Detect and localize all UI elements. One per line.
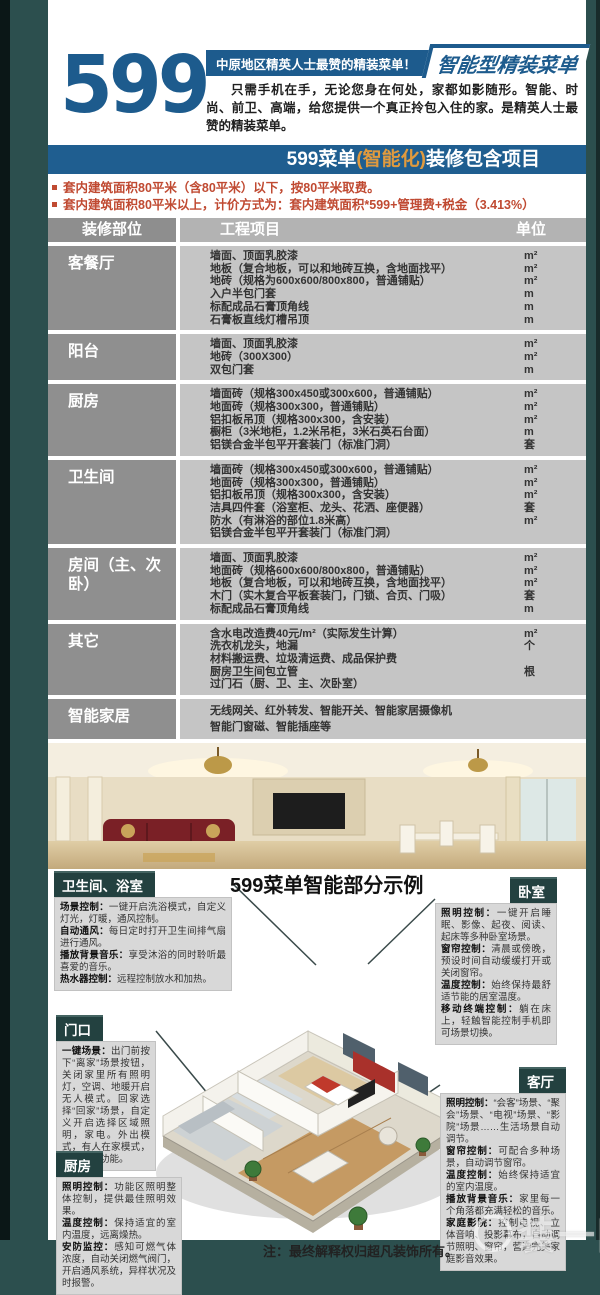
watermark-ring-icon (474, 1214, 512, 1252)
intro-paragraph: 只需手机在手，无论您身在何处，家都如影随形。智能、时尚、前卫、高端，给您提供一个… (206, 81, 578, 135)
table-section-balcony: 阳台 墙面、顶面乳胶漆m² 地砖（300X300）m² 双包门套m (48, 334, 586, 380)
table-section-living-dining: 客餐厅 墙面、顶面乳胶漆m² 地板（复合地板，可以和地砖互换，含地面找平）m² … (48, 246, 586, 330)
table-row: 厨房卫生间包立管根 (210, 666, 582, 679)
area-label: 其它 (48, 624, 176, 696)
banner-prefix: 599菜单 (287, 149, 357, 170)
callout-bathroom-body: 场景控制：一键开启洗浴模式，自定义灯光，灯暖，通风控制。 自动通风：每日定时打开… (54, 897, 232, 991)
col-header-unit: 单位 (516, 218, 586, 242)
table-row: 石膏板直线灯槽吊顶m (210, 314, 582, 327)
table-section-bedrooms: 房间（主、次卧） 墙面、顶面乳胶漆m² 地面砖（规格600x600/800x80… (48, 548, 586, 620)
table-row: 墙面砖（规格300x450或300x600，普通铺贴）m² (210, 388, 582, 401)
table-row: 铝镁合金半包平开套装门（标准门洞） (210, 527, 582, 540)
area-label: 客餐厅 (48, 246, 176, 330)
table-row: 地面砖（规格300x300，普通铺贴）m² (210, 401, 582, 414)
table-row: 地板（复合地板，可以和地砖互换，含地面找平）m² (210, 263, 582, 276)
items-cell: 墙面、顶面乳胶漆m² 地板（复合地板，可以和地砖互换，含地面找平）m² 地砖（规… (180, 246, 586, 330)
callout-kitchen-title: 厨房 (56, 1151, 103, 1177)
area-label: 卫生间 (48, 460, 176, 544)
smart-showcase-section: 599菜单智能部分示例 (48, 869, 586, 1285)
area-label: 阳台 (48, 334, 176, 380)
table-row: 过门石（厨、卫、主、次卧室） (210, 678, 582, 691)
table-row: 铝扣板吊顶（规格300x300，含安装）m² (210, 489, 582, 502)
banner-highlight: (智能化) (356, 149, 426, 170)
section-banner: 599菜单(智能化)装修包含项目 (48, 145, 586, 174)
table-section-kitchen: 厨房 墙面砖（规格300x450或300x600，普通铺贴）m² 地面砖（规格3… (48, 384, 586, 456)
callout-kitchen: 厨房 照明控制：功能区照明整体控制，提供最佳照明效果。 温度控制：保持适宜的室内… (56, 1151, 182, 1295)
items-cell: 含水电改造费40元/m²（实际发生计算）m² 洗衣机龙头，地漏个 材料搬运费、垃… (180, 624, 586, 696)
col-header-area: 装修部位 (48, 218, 176, 242)
table-row: 墙面、顶面乳胶漆m² (210, 250, 582, 263)
table-row: 铝扣板吊顶（规格300x300，含安装）m² (210, 414, 582, 427)
table-row: 木门（实木复合平板套装门，门锁、合页、门吸）套 (210, 590, 582, 603)
callout-bedroom-title: 卧室 (510, 877, 557, 903)
header: 599 中原地区精英人士最赞的精装菜单！ 智能型精装菜单 只需手机在手，无论您身… (48, 44, 586, 138)
table-header-row: 装修部位 工程项目 单位 (48, 218, 586, 242)
items-cell: 无线网关、红外转发、智能开关、智能家居摄像机 智能门窗磁、智能插座等 (180, 699, 586, 739)
table-row: 洁具四件套（浴室柜、龙头、花洒、座便器）套 (210, 502, 582, 515)
table-section-other: 其它 含水电改造费40元/m²（实际发生计算）m² 洗衣机龙头，地漏个 材料搬运… (48, 624, 586, 696)
table-row: 含水电改造费40元/m²（实际发生计算）m² (210, 628, 582, 641)
header-topline: 中原地区精英人士最赞的精装菜单！ 智能型精装菜单 (206, 44, 586, 76)
area-label: 房间（主、次卧） (48, 548, 176, 620)
callout-entrance-title: 门口 (56, 1015, 103, 1041)
package-table: 装修部位 工程项目 单位 客餐厅 墙面、顶面乳胶漆m² 地板（复合地板，可以和地… (48, 218, 586, 739)
table-row: 洗衣机龙头，地漏个 (210, 640, 582, 653)
ribbon-banner: 智能型精装菜单 (422, 44, 590, 78)
table-row: 地板（复合地板，可以和地砖互换，含地面找平）m² (210, 577, 582, 590)
bullet-square-icon (52, 202, 57, 207)
table-section-smart-home: 智能家居 无线网关、红外转发、智能开关、智能家居摄像机 智能门窗磁、智能插座等 (48, 699, 586, 739)
col-header-project: 工程项目 (180, 218, 516, 242)
interior-photo (48, 743, 586, 869)
zhuangyi-logo-watermark: 装一网 (474, 1205, 600, 1260)
flyer-page: 599 中原地区精英人士最赞的精装菜单！ 智能型精装菜单 只需手机在手，无论您身… (48, 0, 586, 1240)
table-row: 标配成品石膏顶角线m (210, 301, 582, 314)
table-row: 墙面、顶面乳胶漆m² (210, 552, 582, 565)
area-label: 智能家居 (48, 699, 176, 739)
table-row: 防水（有淋浴的部位1.8米高）m² (210, 515, 582, 528)
table-row: 双包门套m (210, 364, 582, 377)
pricing-notes: 套内建筑面积80平米（含80平米）以下，按80平米取费。 套内建筑面积80平米以… (52, 180, 586, 214)
callout-bathroom-title: 卫生间、浴室 (54, 871, 155, 897)
items-cell: 墙面砖（规格300x450或300x600，普通铺贴）m² 地面砖（规格300x… (180, 460, 586, 544)
table-row: 地面砖（规格600x600/800x800，普通铺贴）m² (210, 565, 582, 578)
brand-599: 599 (60, 42, 198, 140)
items-cell: 墙面砖（规格300x450或300x600，普通铺贴）m² 地面砖（规格300x… (180, 384, 586, 456)
table-section-bathroom: 卫生间 墙面砖（规格300x450或300x600，普通铺贴）m² 地面砖（规格… (48, 460, 586, 544)
table-row: 智能门窗磁、智能插座等 (210, 719, 582, 735)
watermark-text: 装一网 (517, 1205, 600, 1260)
header-right: 中原地区精英人士最赞的精装菜单！ 智能型精装菜单 只需手机在手，无论您身在何处，… (198, 44, 586, 138)
callout-bedroom: 卧室 照明控制：一键开启睡眠、影像、起夜、阅读、起床等多种卧室场景。 窗帘控制：… (435, 877, 557, 1045)
frame-left-strip (0, 0, 10, 1240)
table-row: 标配成品石膏顶角线m (210, 603, 582, 616)
frame-right-strip (596, 0, 600, 1240)
table-row: 地面砖（规格300x300，普通铺贴）m² (210, 477, 582, 490)
area-label: 厨房 (48, 384, 176, 456)
callout-bathroom: 卫生间、浴室 场景控制：一键开启洗浴模式，自定义灯光，灯暖，通风控制。 自动通风… (54, 871, 232, 991)
bullet-square-icon (52, 185, 57, 190)
items-cell: 墙面、顶面乳胶漆m² 地面砖（规格600x600/800x800，普通铺贴）m²… (180, 548, 586, 620)
table-row: 地砖（规格为600x600/800x800，普通铺贴）m² (210, 275, 582, 288)
items-cell: 墙面、顶面乳胶漆m² 地砖（300X300）m² 双包门套m (180, 334, 586, 380)
table-row: 铝镁合金半包平开套装门（标准门洞）套 (210, 439, 582, 452)
table-row: 材料搬运费、垃圾清运费、成品保护费 (210, 653, 582, 666)
callout-living-title: 客厅 (519, 1067, 566, 1093)
callout-kitchen-body: 照明控制：功能区照明整体控制，提供最佳照明效果。 温度控制：保持适宜的室内温度，… (56, 1177, 182, 1295)
tagline-bar: 中原地区精英人士最赞的精装菜单！ (206, 50, 430, 76)
table-row: 墙面、顶面乳胶漆m² (210, 338, 582, 351)
showcase-title: 599菜单智能部分示例 (230, 869, 423, 898)
table-row: 墙面砖（规格300x450或300x600，普通铺贴）m² (210, 464, 582, 477)
callout-bedroom-body: 照明控制：一键开启睡眠、影像、起夜、阅读、起床等多种卧室场景。 窗帘控制：清晨或… (435, 903, 557, 1045)
callout-entrance: 门口 一键场景：出门前按下“离家”场景按钮，关闭家里所有照明灯，空调、地暖开启无… (56, 1015, 156, 1171)
table-row: 橱柜（3米地柜，1.2米吊柜，3米石英石台面）m (210, 426, 582, 439)
table-row: 地砖（300X300）m² (210, 351, 582, 364)
disclaimer-note: 注：最终解释权归超凡装饰所有。 (263, 1241, 458, 1260)
banner-suffix: 装修包含项目 (426, 149, 540, 170)
table-row: 入户半包门套m (210, 288, 582, 301)
pricing-note: 套内建筑面积80平米以上，计价方式为：套内建筑面积*599+管理费+税金（3.4… (52, 197, 586, 214)
pricing-note: 套内建筑面积80平米（含80平米）以下，按80平米取费。 (52, 180, 586, 197)
ribbon-text: 智能型精装菜单 (435, 49, 579, 78)
table-row: 无线网关、红外转发、智能开关、智能家居摄像机 (210, 703, 582, 719)
